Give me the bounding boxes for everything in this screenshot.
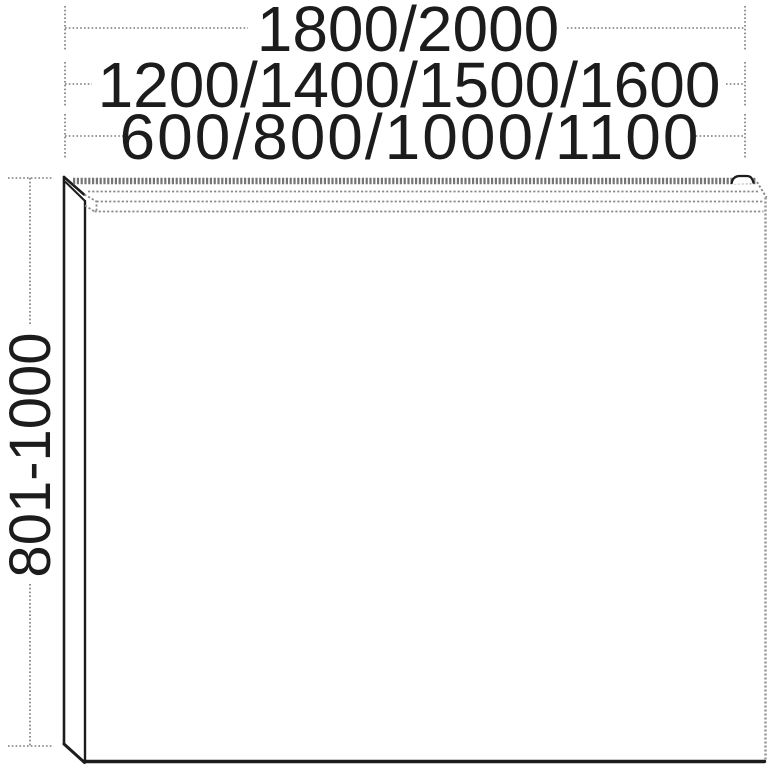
light-strip-left-end-cap <box>85 195 97 212</box>
mirror-side-panel-bottom-edge <box>64 744 85 763</box>
mirror-body <box>64 177 765 763</box>
dimension-drawing-canvas: 1800/2000 1200/1400/1500/1600 600/800/10… <box>0 0 776 768</box>
dimension-label-height: 801-1000 <box>0 332 63 577</box>
dimension-label-small-widths: 600/800/1000/1100 <box>120 101 701 173</box>
mirror-dimension-diagram: 1800/2000 1200/1400/1500/1600 600/800/10… <box>0 0 776 768</box>
light-strip <box>73 181 767 212</box>
light-strip-right-end-cap <box>757 182 767 198</box>
mounting-clip <box>732 176 754 184</box>
